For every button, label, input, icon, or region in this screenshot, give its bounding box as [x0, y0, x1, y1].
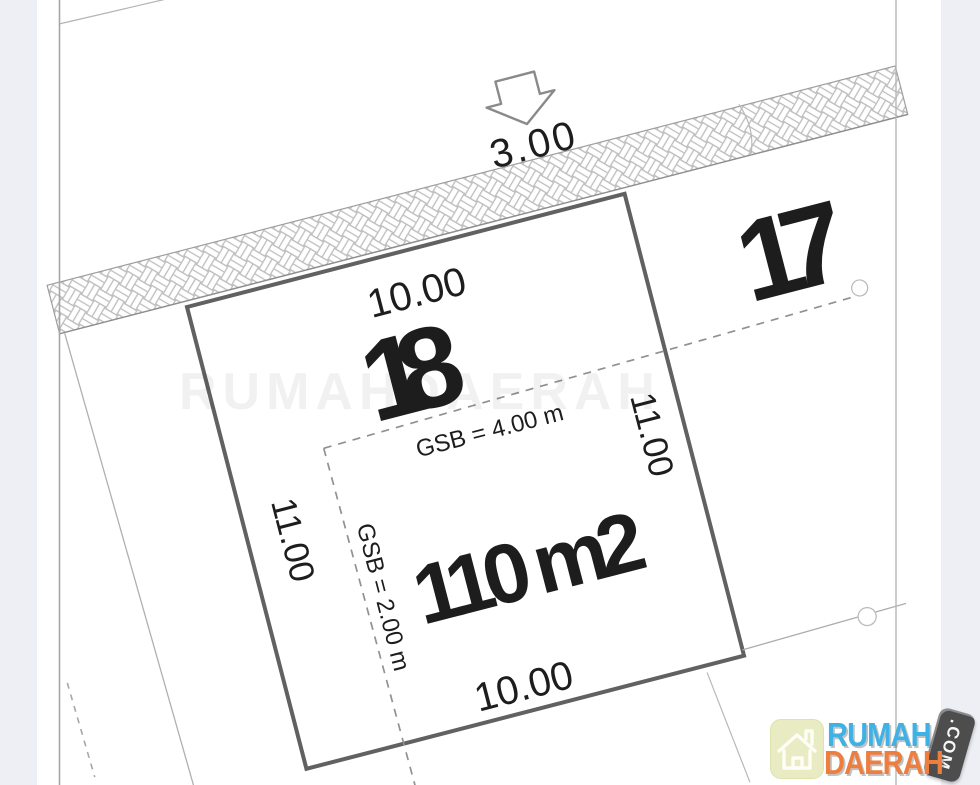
- site-plan-drawing: 3.00 10.00 18 GSB = 4.00 m 110 m2 GSB = …: [0, 0, 980, 785]
- right-margin-strip: [941, 0, 980, 785]
- left-margin-strip: [0, 0, 37, 785]
- faint-watermark-text: RUMAHDAERAH: [179, 363, 661, 421]
- site-plan-screenshot: 3.00 10.00 18 GSB = 4.00 m 110 m2 GSB = …: [0, 0, 980, 785]
